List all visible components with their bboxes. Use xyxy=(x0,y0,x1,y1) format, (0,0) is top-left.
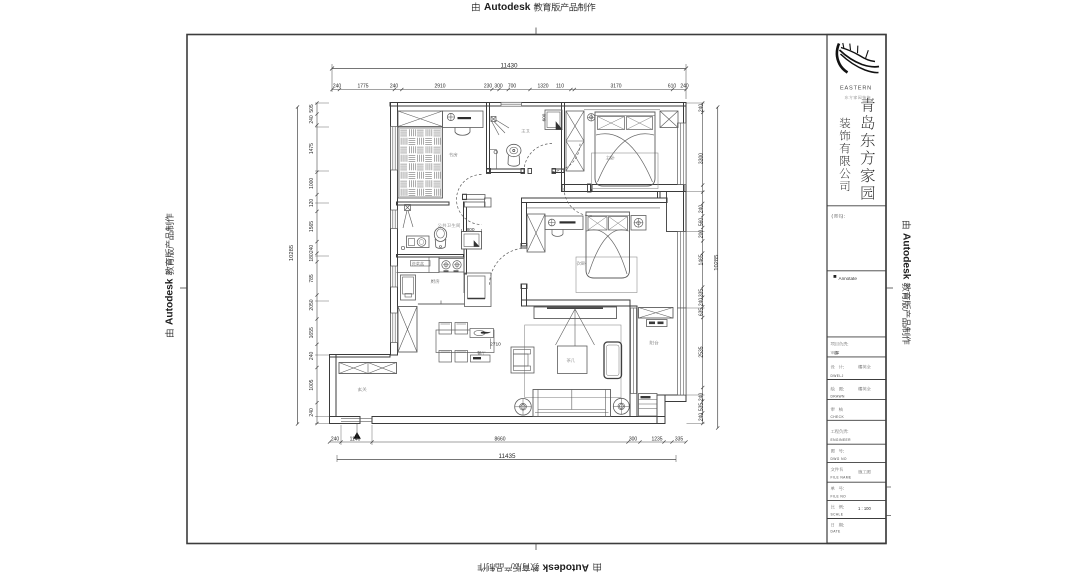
svg-text::: : xyxy=(843,365,844,370)
svg-text:3170: 3170 xyxy=(610,84,621,90)
svg-text::: : xyxy=(843,486,844,491)
svg-text:Autodesk: Autodesk xyxy=(165,278,176,325)
svg-text::: : xyxy=(847,342,848,347)
svg-text:DWELJ: DWELJ xyxy=(831,374,844,378)
svg-text:Autodesk: Autodesk xyxy=(484,2,531,13)
svg-text::: : xyxy=(843,449,844,454)
svg-text:230: 230 xyxy=(484,84,493,90)
svg-text:3300: 3300 xyxy=(699,153,705,164)
svg-text:240: 240 xyxy=(390,84,399,90)
svg-text:Annotate: Annotate xyxy=(839,276,858,281)
svg-text:240: 240 xyxy=(309,352,315,361)
svg-text:1775: 1775 xyxy=(357,84,368,90)
svg-text:560: 560 xyxy=(699,218,705,227)
svg-text:10285: 10285 xyxy=(289,245,295,261)
svg-text::: : xyxy=(843,387,844,392)
svg-text:EASTERN: EASTERN xyxy=(840,86,872,92)
svg-text:2050: 2050 xyxy=(309,299,315,310)
svg-text:240: 240 xyxy=(309,408,315,417)
svg-text:1005: 1005 xyxy=(309,379,315,390)
svg-text:610: 610 xyxy=(668,84,677,90)
svg-text:240: 240 xyxy=(680,84,689,90)
svg-text:1320: 1320 xyxy=(537,84,548,90)
svg-text:11435: 11435 xyxy=(498,453,516,460)
svg-text:Autodesk: Autodesk xyxy=(542,561,589,572)
svg-text:1565: 1565 xyxy=(309,221,315,232)
svg-text:2710: 2710 xyxy=(490,342,501,348)
svg-text:1000: 1000 xyxy=(309,178,315,189)
svg-text:军: 军 xyxy=(836,351,840,355)
svg-text:300: 300 xyxy=(629,437,638,443)
svg-text:2910: 2910 xyxy=(434,84,445,90)
svg-text:1235: 1235 xyxy=(651,437,662,443)
svg-text:180: 180 xyxy=(309,253,315,262)
svg-text:DWG NO: DWG NO xyxy=(831,457,847,461)
svg-text:800: 800 xyxy=(466,227,474,233)
svg-text:SCALE: SCALE xyxy=(831,513,844,517)
svg-text::: : xyxy=(843,523,844,528)
svg-text:10285: 10285 xyxy=(714,255,720,271)
svg-text::: : xyxy=(843,505,844,510)
svg-text:2535: 2535 xyxy=(699,346,705,357)
svg-text:240: 240 xyxy=(309,245,315,254)
svg-text:1655: 1655 xyxy=(309,327,315,338)
svg-text:120: 120 xyxy=(309,199,315,208)
svg-text:FILE NO: FILE NO xyxy=(831,495,847,499)
svg-text:535: 535 xyxy=(699,403,705,412)
svg-text:240: 240 xyxy=(699,205,705,214)
svg-text:335: 335 xyxy=(675,437,684,443)
svg-text:ENGINEER: ENGINEER xyxy=(831,438,852,442)
svg-text:785: 785 xyxy=(309,274,315,283)
svg-text:635: 635 xyxy=(699,308,705,317)
svg-text:Autodesk: Autodesk xyxy=(900,233,911,280)
svg-text:8660: 8660 xyxy=(494,437,505,443)
svg-text:1 : 100: 1 : 100 xyxy=(858,506,871,511)
svg-text:240: 240 xyxy=(331,437,340,443)
svg-text:DATE: DATE xyxy=(831,530,842,534)
svg-text:DRAWN: DRAWN xyxy=(831,395,846,399)
svg-text:1465: 1465 xyxy=(699,254,705,265)
svg-text:240: 240 xyxy=(309,115,315,124)
svg-text:200: 200 xyxy=(699,230,705,239)
svg-text::: : xyxy=(844,214,845,219)
svg-text:600: 600 xyxy=(542,113,547,121)
svg-text:FILE NAME: FILE NAME xyxy=(831,476,852,480)
svg-text:300: 300 xyxy=(494,84,503,90)
svg-text:110: 110 xyxy=(556,84,564,90)
svg-text:1475: 1475 xyxy=(309,143,315,154)
svg-text:505: 505 xyxy=(309,104,315,113)
svg-text:11430: 11430 xyxy=(500,63,518,70)
svg-text:CHECK: CHECK xyxy=(831,415,845,419)
svg-text::: : xyxy=(847,429,848,434)
svg-text:240: 240 xyxy=(699,298,705,307)
